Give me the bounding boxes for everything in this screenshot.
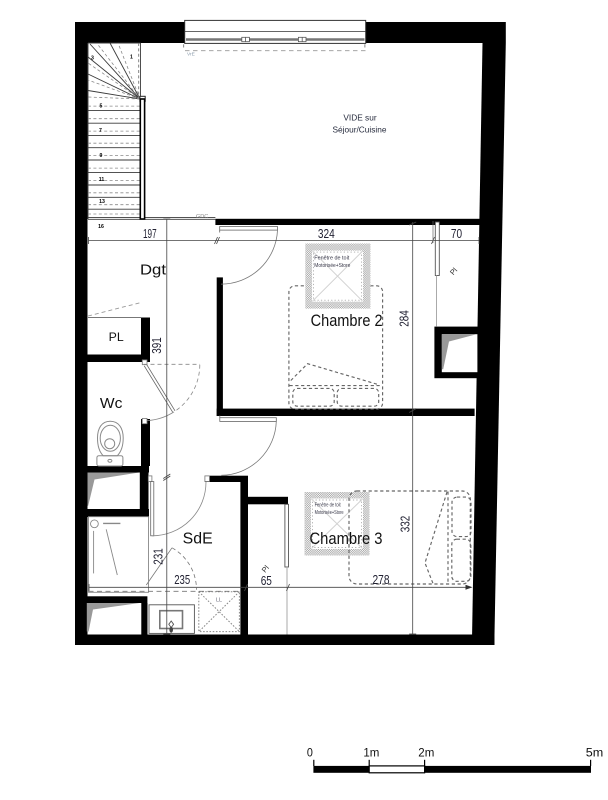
svg-text:235: 235 <box>174 572 190 587</box>
svg-text:Dgt: Dgt <box>140 263 166 279</box>
svg-text:3: 3 <box>91 56 94 62</box>
svg-text:70: 70 <box>451 226 462 241</box>
svg-text:13: 13 <box>99 199 105 205</box>
svg-text:324: 324 <box>318 226 335 241</box>
svg-text:Motorisée+Store: Motorisée+Store <box>315 510 344 516</box>
svg-text:VrE: VrE <box>187 52 195 58</box>
svg-text:7: 7 <box>99 128 102 134</box>
svg-text:5m: 5m <box>586 746 604 760</box>
svg-text:284: 284 <box>397 310 412 327</box>
svg-text:SdE: SdE <box>183 531 213 548</box>
svg-text:Fenêtre de toit: Fenêtre de toit <box>314 255 349 261</box>
svg-text:Motorisée+Store: Motorisée+Store <box>314 263 350 269</box>
svg-text:231: 231 <box>151 548 166 565</box>
svg-text:1m: 1m <box>363 746 379 760</box>
svg-text:9: 9 <box>100 153 103 159</box>
svg-text:2m: 2m <box>418 746 434 760</box>
svg-text:Wc: Wc <box>100 396 123 412</box>
svg-text:197: 197 <box>143 226 157 241</box>
svg-text:1: 1 <box>130 55 133 61</box>
svg-text:11: 11 <box>99 177 105 183</box>
svg-text:278: 278 <box>373 572 390 587</box>
svg-text:Chambre 3: Chambre 3 <box>310 530 383 548</box>
svg-text:Chambre 2: Chambre 2 <box>311 312 383 330</box>
svg-text:LL: LL <box>216 598 222 604</box>
svg-text:VIDE sur: VIDE sur <box>343 113 376 123</box>
svg-text:332: 332 <box>398 516 413 533</box>
svg-text:65: 65 <box>261 573 272 588</box>
svg-text:Fenêtre de toit: Fenêtre de toit <box>315 503 341 509</box>
svg-text:391: 391 <box>149 337 164 354</box>
svg-text:5: 5 <box>100 104 103 110</box>
svg-text:Séjour/Cuisine: Séjour/Cuisine <box>333 125 387 135</box>
svg-text:GDC: GDC <box>196 214 208 220</box>
svg-text:0: 0 <box>307 746 313 760</box>
svg-text:PL: PL <box>109 330 124 344</box>
svg-text:16: 16 <box>98 224 104 230</box>
